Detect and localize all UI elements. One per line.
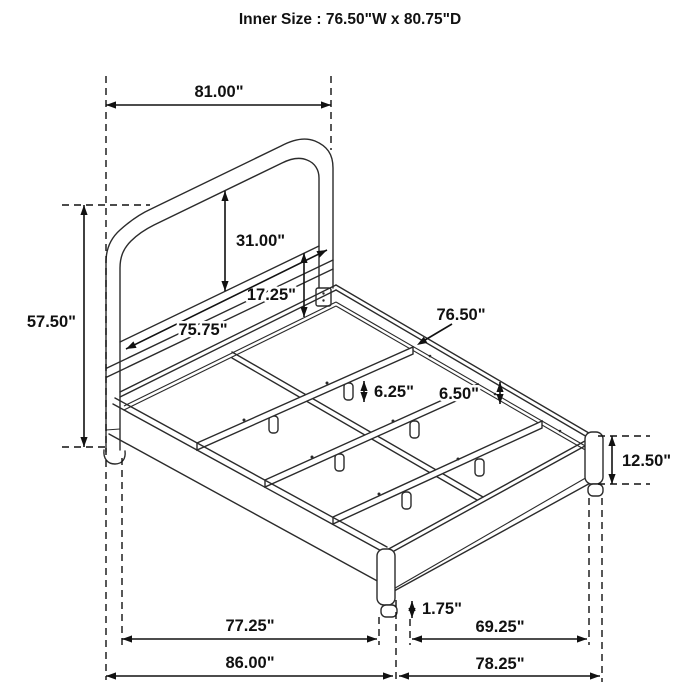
page-title: Inner Size : 76.50"W x 80.75"D: [239, 11, 461, 28]
dim-label-side-rail-height: 6.50": [439, 385, 479, 403]
dim-footboard-height: 12.50": [608, 436, 671, 484]
dim-overall-depth: 78.25": [399, 655, 600, 680]
dim-label-headboard-inner-width: 75.75": [178, 321, 227, 339]
dim-label-overall-depth: 78.25": [475, 655, 524, 673]
dim-slat-leg-height: 6.25": [360, 381, 414, 402]
dim-headboard-height: 57.50": [27, 205, 88, 447]
dim-overall-width: 86.00": [106, 654, 393, 680]
slats: [197, 347, 561, 524]
dim-label-overall-width: 86.00": [225, 654, 274, 672]
dim-label-footboard-height: 12.50": [622, 452, 671, 470]
dimension-diagram: Inner Size : 76.50"W x 80.75"D: [0, 0, 700, 700]
footboard: [377, 432, 603, 617]
dim-headboard-width: 81.00": [106, 83, 331, 109]
dim-label-slat-width: 76.50": [436, 306, 485, 324]
dim-label-foot-height: 1.75": [422, 600, 462, 618]
footboard-left-post: [377, 549, 395, 605]
bed-frame-drawing: Inner Size : 76.50"W x 80.75"D: [0, 0, 700, 700]
dim-label-slat-leg-height: 6.25": [374, 383, 414, 401]
dim-slat-width: 76.50": [415, 306, 485, 348]
dim-label-frame-inner-width: 77.25": [225, 617, 274, 635]
right-foot: [588, 484, 603, 496]
dim-frame-inner-width: 77.25": [122, 617, 377, 643]
dim-side-inner-length: 69.25": [412, 618, 587, 643]
dim-headboard-inner-width: 75.75": [124, 247, 328, 352]
dim-foot-height: 1.75": [408, 600, 462, 618]
dim-label-panel-height: 31.00": [236, 232, 285, 250]
dim-label-side-inner-length: 69.25": [475, 618, 524, 636]
dim-label-panel-to-rail: 17.25": [247, 286, 296, 304]
headboard: [104, 139, 333, 464]
dim-label-headboard-width: 81.00": [194, 83, 243, 101]
left-foot: [381, 605, 397, 617]
dim-label-headboard-height: 57.50": [27, 313, 76, 331]
footboard-right-post: [585, 432, 603, 484]
